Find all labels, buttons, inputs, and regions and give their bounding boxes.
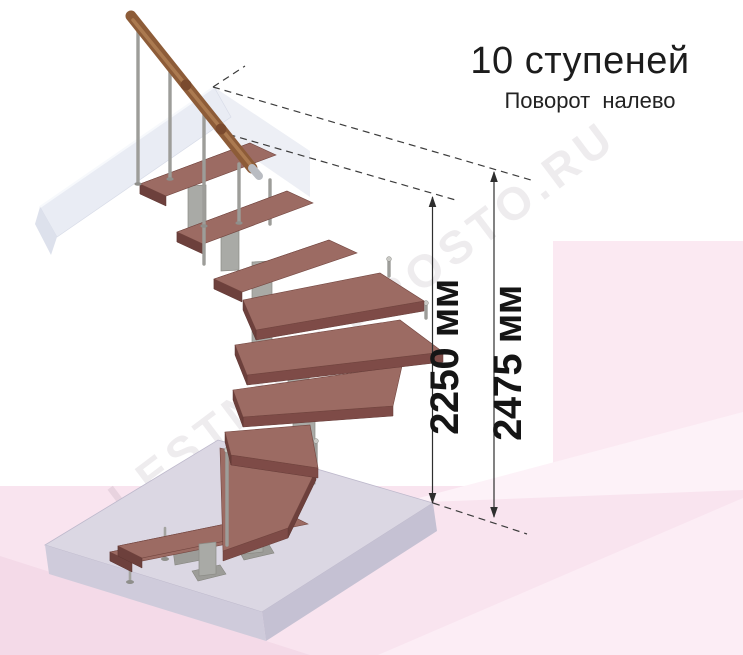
post: [199, 542, 216, 576]
title-turn-direction: Поворот налево: [450, 88, 730, 114]
support-rod-foot: [161, 557, 169, 561]
dimension-label-inner-height: 2250 мм: [423, 279, 467, 435]
upper-floor-beam: [35, 87, 310, 255]
support-rod-foot: [126, 580, 134, 584]
handrail-joint: [216, 124, 227, 135]
arrowhead: [429, 196, 437, 207]
baluster-foot: [134, 182, 141, 186]
rod-ball-joint: [387, 257, 392, 262]
rod-ball-joint: [314, 439, 319, 444]
arrowhead: [490, 171, 498, 182]
baluster-foot: [200, 224, 207, 228]
baluster-foot: [166, 177, 173, 181]
handrail-joint: [181, 80, 192, 91]
baluster-foot: [235, 221, 242, 225]
extension-line-top-short: [213, 66, 245, 87]
staircase-diagram: LESTNICY-PROSTO.RU: [0, 0, 743, 655]
handrail-end-ferrule: [252, 168, 259, 176]
dimension-label-overall-height: 2475 мм: [486, 285, 530, 441]
title-steps-count: 10 ступеней: [430, 42, 730, 82]
